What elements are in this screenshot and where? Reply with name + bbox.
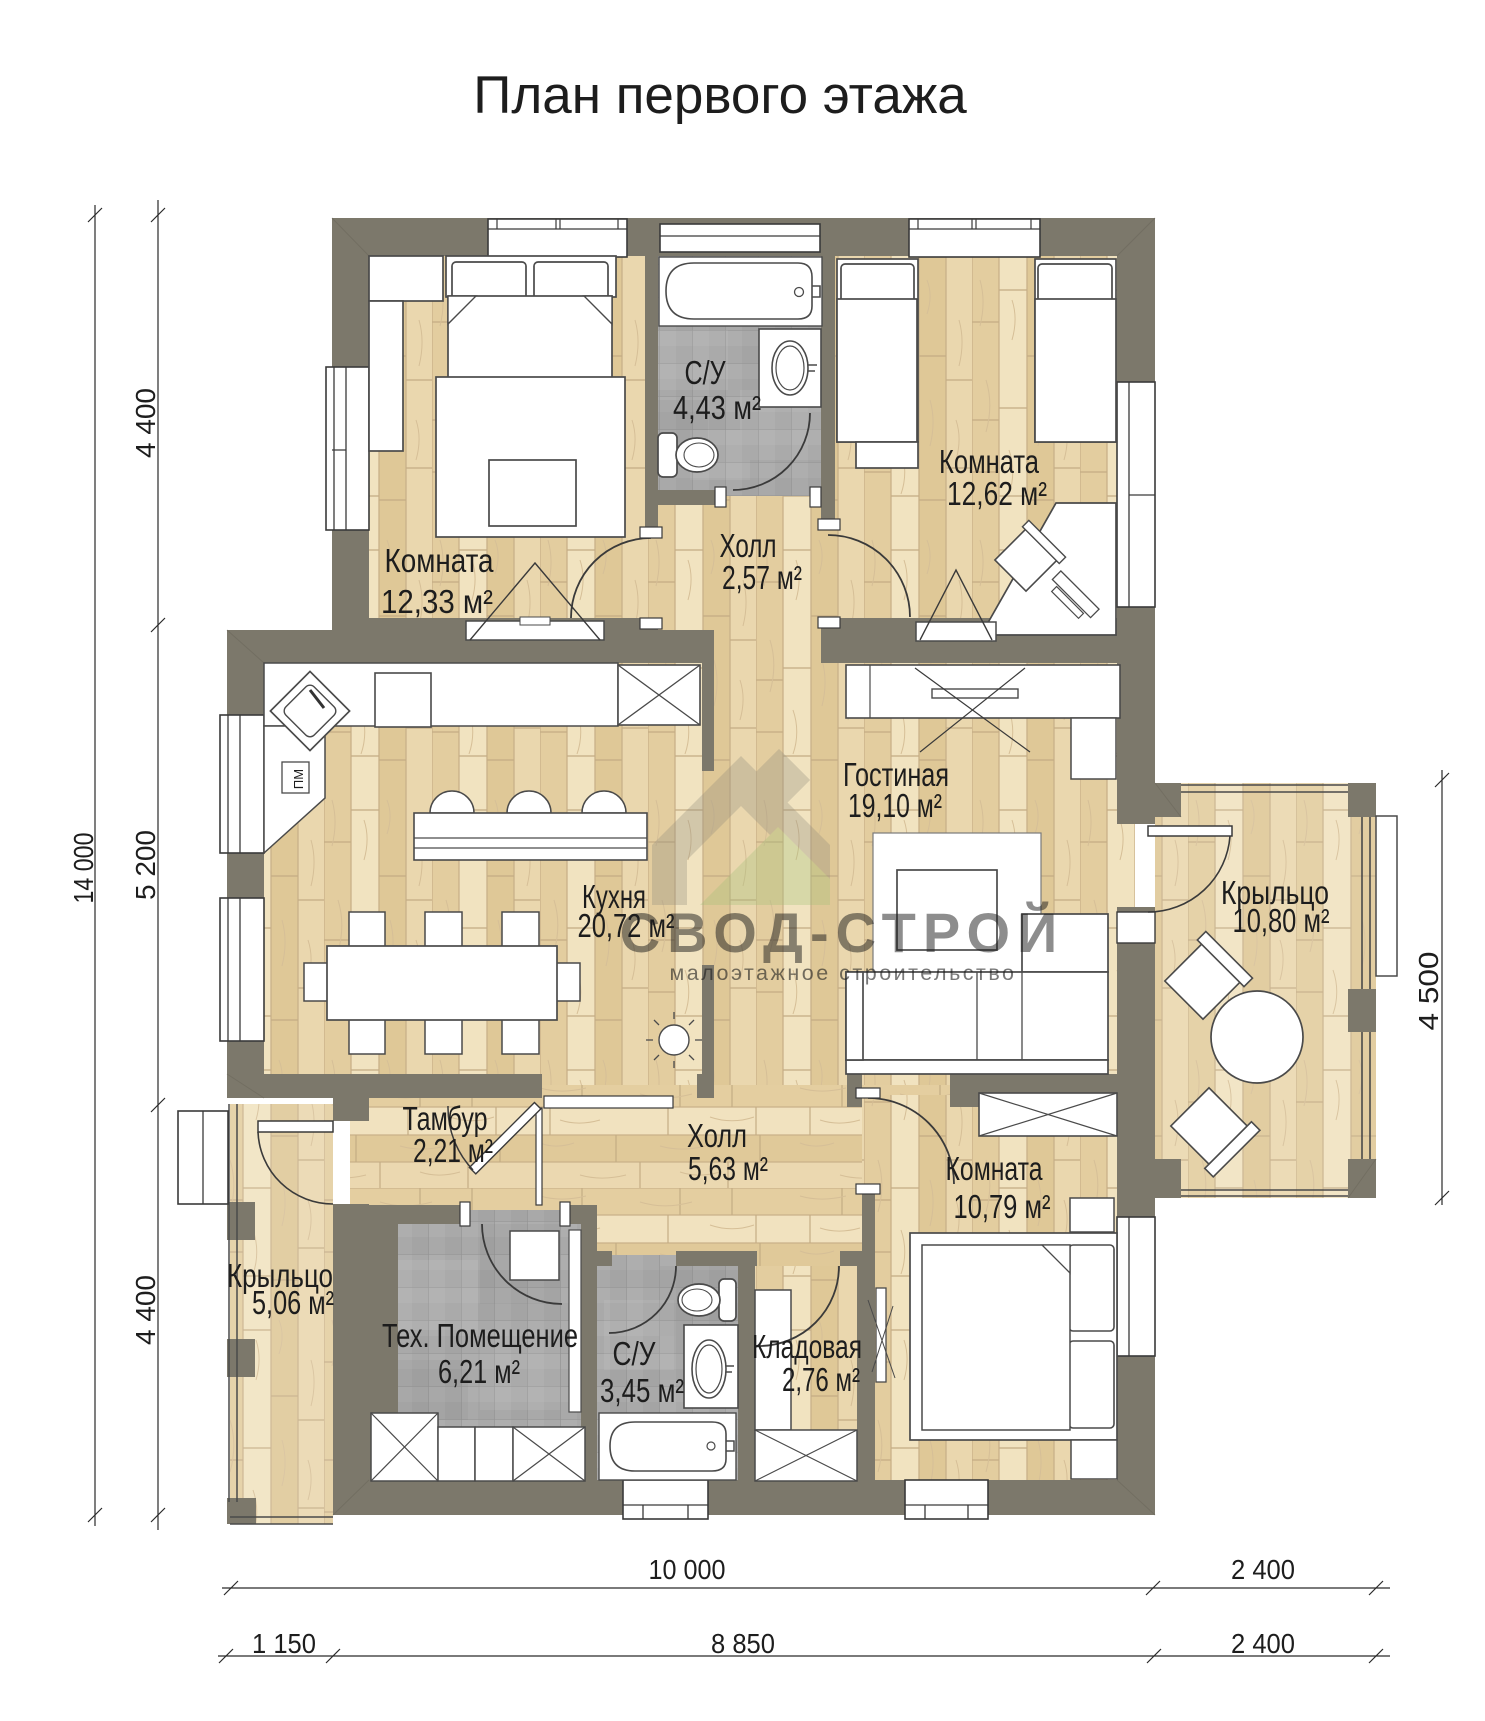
svg-text:12,62 м²: 12,62 м² [947, 475, 1047, 512]
svg-text:Комната: Комната [385, 542, 495, 579]
svg-text:5,63 м²: 5,63 м² [688, 1150, 768, 1187]
svg-text:2 400: 2 400 [1231, 1554, 1295, 1585]
svg-text:С/У: С/У [613, 1335, 657, 1372]
svg-text:План первого этажа: План первого этажа [473, 66, 967, 125]
svg-text:4 400: 4 400 [130, 1275, 161, 1345]
svg-text:3,45 м²: 3,45 м² [600, 1372, 684, 1409]
svg-text:2,76 м²: 2,76 м² [782, 1361, 860, 1398]
svg-text:Комната: Комната [946, 1150, 1043, 1187]
svg-text:ПМ: ПМ [291, 769, 306, 789]
svg-text:С/У: С/У [685, 354, 727, 391]
svg-text:20,72 м²: 20,72 м² [578, 907, 675, 944]
svg-text:2 400: 2 400 [1231, 1628, 1295, 1659]
svg-text:1 150: 1 150 [252, 1628, 316, 1659]
svg-text:СВОД-СТРОЙ: СВОД-СТРОЙ [620, 901, 1065, 964]
svg-text:10,80 м²: 10,80 м² [1233, 902, 1330, 939]
svg-text:6,21 м²: 6,21 м² [438, 1353, 520, 1390]
svg-text:4 500: 4 500 [1413, 952, 1444, 1031]
svg-text:5 200: 5 200 [130, 830, 161, 900]
svg-text:14 000: 14 000 [68, 833, 99, 904]
svg-text:10 000: 10 000 [649, 1554, 726, 1585]
svg-text:малоэтажное строительство: малоэтажное строительство [669, 961, 1016, 985]
svg-text:4,43 м²: 4,43 м² [673, 389, 761, 426]
svg-text:10,79 м²: 10,79 м² [954, 1188, 1051, 1225]
svg-text:2,57 м²: 2,57 м² [722, 559, 802, 596]
svg-text:12,33 м²: 12,33 м² [381, 583, 493, 620]
svg-text:Холл: Холл [687, 1117, 747, 1154]
svg-text:19,10 м²: 19,10 м² [848, 787, 942, 824]
svg-text:4 400: 4 400 [130, 388, 161, 458]
svg-text:5,06 м²: 5,06 м² [252, 1284, 334, 1321]
svg-text:Тех. Помещение: Тех. Помещение [382, 1317, 578, 1354]
svg-text:Кладовая: Кладовая [752, 1328, 862, 1365]
svg-text:8 850: 8 850 [711, 1628, 775, 1659]
svg-text:2,21 м²: 2,21 м² [413, 1132, 493, 1169]
